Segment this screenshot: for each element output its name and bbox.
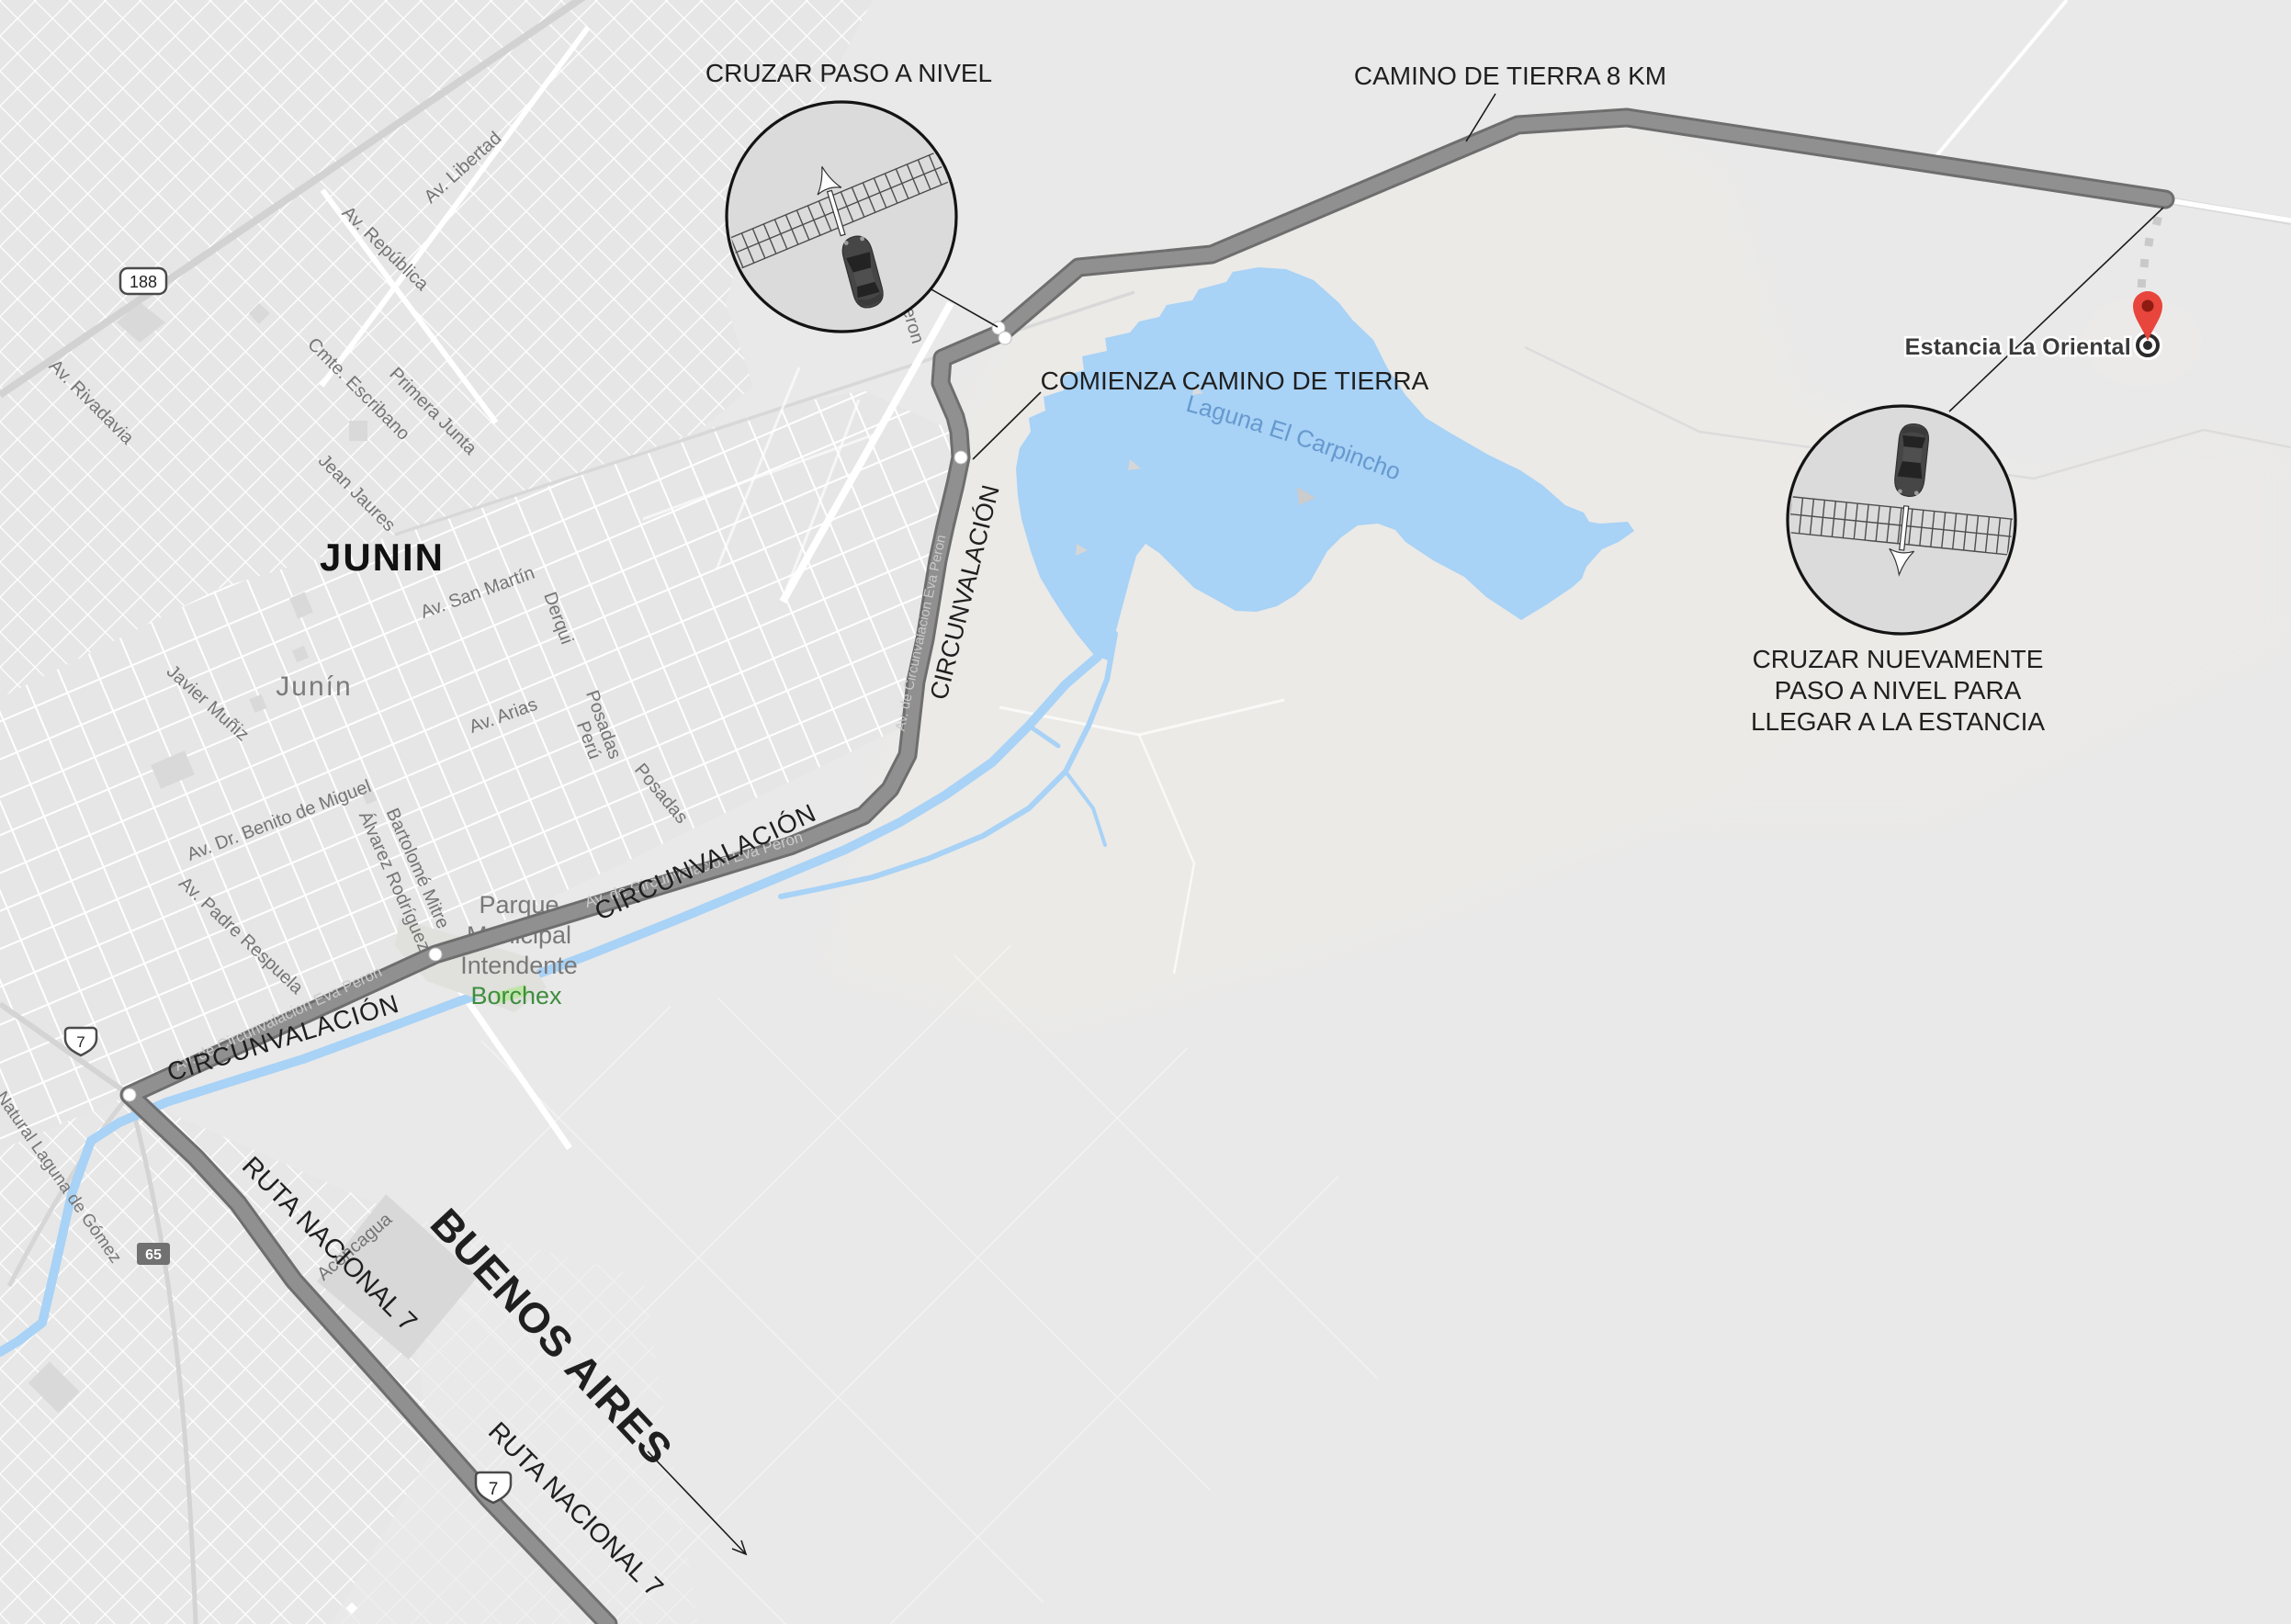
svg-text:188: 188 (130, 273, 157, 291)
svg-text:JUNIN: JUNIN (320, 536, 445, 579)
svg-text:7: 7 (489, 1480, 499, 1499)
svg-text:CRUZAR NUEVAMENTE: CRUZAR NUEVAMENTE (1753, 645, 2044, 673)
svg-text:CAMINO DE TIERRA 8 KM: CAMINO DE TIERRA 8 KM (1354, 62, 1666, 90)
svg-text:65: 65 (145, 1247, 162, 1263)
svg-text:Intendente: Intendente (460, 952, 578, 979)
svg-text:Estancia La Oriental: Estancia La Oriental (1905, 334, 2131, 360)
svg-text:COMIENZA CAMINO DE TIERRA: COMIENZA CAMINO DE TIERRA (1041, 367, 1429, 395)
svg-text:7: 7 (76, 1033, 85, 1051)
svg-text:Borchex: Borchex (470, 982, 562, 1009)
svg-text:LLEGAR A LA ESTANCIA: LLEGAR A LA ESTANCIA (1751, 707, 2045, 736)
svg-text:CRUZAR PASO A NIVEL: CRUZAR PASO A NIVEL (705, 59, 992, 87)
svg-text:Junín: Junín (276, 671, 352, 702)
svg-text:PASO A NIVEL PARA: PASO A NIVEL PARA (1775, 676, 2022, 705)
